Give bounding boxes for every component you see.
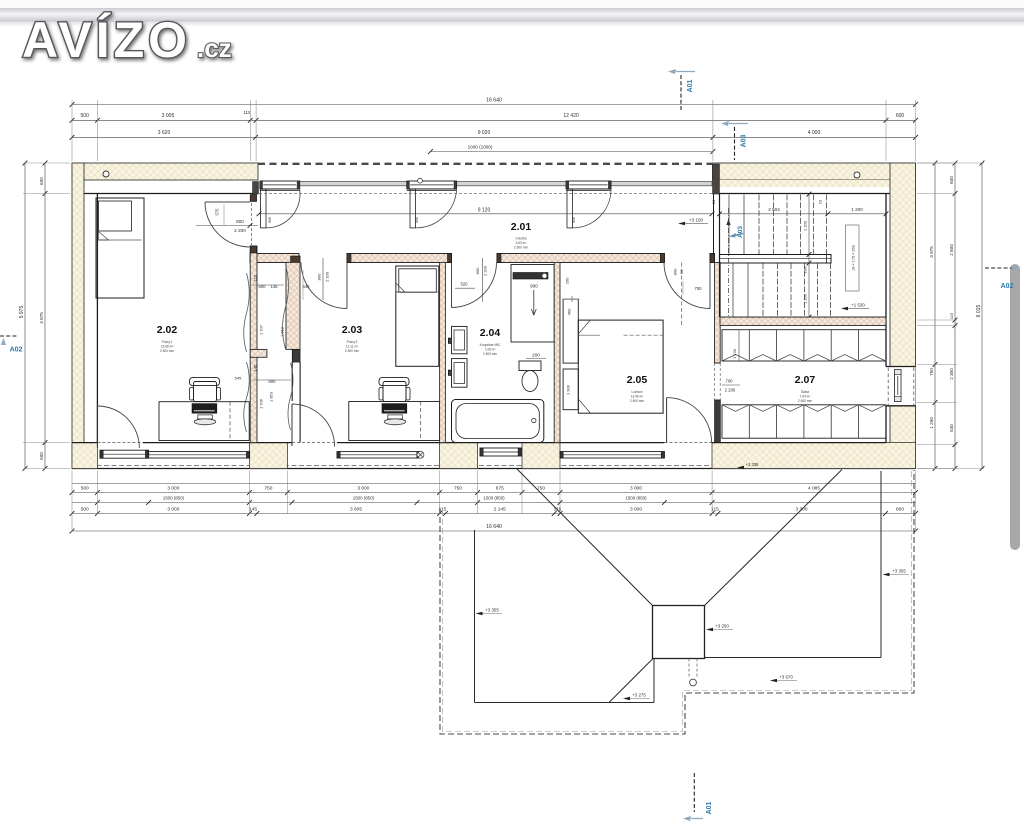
svg-text:2 504: 2 504 xyxy=(768,207,780,212)
svg-text:800: 800 xyxy=(317,273,322,280)
svg-text:1500 (850): 1500 (850) xyxy=(483,496,505,501)
svg-text:A01: A01 xyxy=(706,801,713,814)
svg-text:900: 900 xyxy=(268,217,272,223)
svg-text:100: 100 xyxy=(803,266,808,273)
svg-text:2 600 mm: 2 600 mm xyxy=(514,246,529,250)
svg-text:875: 875 xyxy=(496,486,504,492)
svg-text:2 600 mm: 2 600 mm xyxy=(345,349,360,353)
svg-text:1500 (850): 1500 (850) xyxy=(163,496,185,501)
svg-text:3 000: 3 000 xyxy=(167,486,179,492)
svg-text:7,64 m²: 7,64 m² xyxy=(800,395,811,399)
svg-text:460: 460 xyxy=(567,308,572,315)
svg-text:145: 145 xyxy=(249,507,257,513)
svg-text:750: 750 xyxy=(264,486,272,492)
svg-text:+3 670: +3 670 xyxy=(779,675,793,680)
svg-text:+3 250: +3 250 xyxy=(715,624,729,629)
svg-text:1 200: 1 200 xyxy=(803,220,808,231)
svg-text:+3 275: +3 275 xyxy=(632,693,646,698)
svg-text:1 290: 1 290 xyxy=(929,417,934,429)
svg-text:4 085: 4 085 xyxy=(808,486,820,492)
svg-text:2.05: 2.05 xyxy=(627,374,648,386)
svg-text:2 145: 2 145 xyxy=(494,507,506,513)
svg-text:2 200: 2 200 xyxy=(234,228,246,233)
svg-text:1 200: 1 200 xyxy=(851,207,863,212)
svg-text:1 200: 1 200 xyxy=(803,293,808,304)
svg-text:575: 575 xyxy=(215,208,220,216)
svg-text:700: 700 xyxy=(726,379,734,384)
svg-text:500: 500 xyxy=(81,486,89,492)
svg-text:Chodba: Chodba xyxy=(515,237,526,241)
svg-text:15,68 m²: 15,68 m² xyxy=(161,345,174,349)
svg-text:750: 750 xyxy=(695,286,703,291)
svg-text:1 130: 1 130 xyxy=(732,348,737,359)
svg-text:2 600: 2 600 xyxy=(949,244,954,256)
svg-text:2 350: 2 350 xyxy=(949,368,954,380)
svg-text:Koupelna+WC: Koupelna+WC xyxy=(480,343,501,347)
svg-text:+3 355: +3 355 xyxy=(485,608,499,613)
svg-text:Pokoj 3: Pokoj 3 xyxy=(347,340,358,344)
svg-text:AVÍZO: AVÍZO xyxy=(22,12,191,68)
svg-text:1 612: 1 612 xyxy=(280,326,285,337)
svg-text:520: 520 xyxy=(461,282,469,287)
svg-text:+3 150: +3 150 xyxy=(689,218,704,223)
svg-text:10: 10 xyxy=(818,199,823,204)
svg-text:600: 600 xyxy=(39,177,44,185)
svg-text:7,28 m²: 7,28 m² xyxy=(485,348,496,352)
svg-text:115: 115 xyxy=(253,274,258,281)
svg-text:+3 355: +3 355 xyxy=(892,569,906,574)
svg-text:800: 800 xyxy=(475,267,480,274)
svg-text:3 605: 3 605 xyxy=(350,507,362,513)
svg-text:9 020: 9 020 xyxy=(478,130,491,136)
svg-text:600: 600 xyxy=(896,113,905,119)
svg-text:1500 (850): 1500 (850) xyxy=(625,496,647,501)
svg-text:500: 500 xyxy=(39,452,44,460)
svg-text:800: 800 xyxy=(236,219,244,224)
svg-text:3 975: 3 975 xyxy=(929,246,934,258)
svg-text:A01: A01 xyxy=(687,79,694,92)
svg-text:2.04: 2.04 xyxy=(480,327,501,339)
svg-text:1500 (850): 1500 (850) xyxy=(353,496,375,501)
svg-text:2 200: 2 200 xyxy=(725,388,736,393)
svg-text:500: 500 xyxy=(81,507,89,513)
svg-text:13,46 m²: 13,46 m² xyxy=(631,395,644,399)
svg-text:1 707: 1 707 xyxy=(259,324,264,335)
svg-text:2 600 mm: 2 600 mm xyxy=(483,352,498,356)
svg-text:3 000: 3 000 xyxy=(630,486,642,492)
svg-text:800: 800 xyxy=(673,268,678,275)
svg-text:5 975: 5 975 xyxy=(19,306,25,319)
svg-text:1 853: 1 853 xyxy=(269,391,274,402)
svg-text:900: 900 xyxy=(530,284,538,289)
svg-text:9 120: 9 120 xyxy=(478,207,491,213)
svg-text:900: 900 xyxy=(415,217,419,223)
svg-text:2 200: 2 200 xyxy=(325,271,330,282)
svg-text:900: 900 xyxy=(572,217,576,223)
svg-text:1 706: 1 706 xyxy=(259,398,264,409)
svg-text:600: 600 xyxy=(896,507,904,513)
svg-text:+3 335: +3 335 xyxy=(746,462,760,467)
svg-text:2 600 mm: 2 600 mm xyxy=(630,399,645,403)
svg-text:2 200: 2 200 xyxy=(483,265,488,276)
svg-text:A03: A03 xyxy=(737,226,744,238)
svg-text:+1 530: +1 530 xyxy=(851,303,865,308)
svg-text:2.02: 2.02 xyxy=(157,324,178,336)
svg-text:750: 750 xyxy=(929,368,934,376)
svg-text:2.07: 2.07 xyxy=(795,374,816,386)
svg-text:3 000: 3 000 xyxy=(630,507,642,513)
svg-text:16 640: 16 640 xyxy=(486,98,502,104)
svg-text:115: 115 xyxy=(243,110,251,115)
svg-text:2.03: 2.03 xyxy=(342,324,363,336)
svg-text:Ložnice: Ložnice xyxy=(632,390,643,394)
svg-text:200: 200 xyxy=(532,353,540,358)
svg-text:545: 545 xyxy=(235,376,242,381)
svg-text:115: 115 xyxy=(949,312,954,319)
svg-text:1 900: 1 900 xyxy=(566,384,571,395)
svg-text:750: 750 xyxy=(454,486,462,492)
svg-text:600: 600 xyxy=(949,176,954,184)
svg-text:6 015: 6 015 xyxy=(976,305,982,318)
svg-text:18 × 175 × 263: 18 × 175 × 263 xyxy=(852,245,856,271)
svg-text:A02: A02 xyxy=(10,347,23,354)
svg-text:1000 (1000): 1000 (1000) xyxy=(468,145,493,150)
svg-text:3 620: 3 620 xyxy=(158,130,171,136)
svg-text:2 600 mm: 2 600 mm xyxy=(160,349,175,353)
svg-text:3 000: 3 000 xyxy=(357,486,369,492)
svg-text:500: 500 xyxy=(81,113,90,119)
svg-text:145: 145 xyxy=(253,364,258,371)
svg-text:3 000: 3 000 xyxy=(167,507,179,513)
svg-text:.cz: .cz xyxy=(197,33,232,63)
svg-text:9,63 m²: 9,63 m² xyxy=(516,241,527,245)
svg-text:200: 200 xyxy=(565,277,570,284)
svg-text:2 600 mm: 2 600 mm xyxy=(798,399,813,403)
svg-text:18: 18 xyxy=(711,199,716,204)
svg-text:Šatna: Šatna xyxy=(801,389,810,394)
svg-text:4 000: 4 000 xyxy=(808,130,821,136)
svg-text:4 875: 4 875 xyxy=(39,312,44,324)
svg-text:16 640: 16 640 xyxy=(486,524,502,530)
svg-text:12,11 m²: 12,11 m² xyxy=(346,345,358,349)
svg-text:3 005: 3 005 xyxy=(162,113,175,119)
svg-text:12 420: 12 420 xyxy=(563,113,579,119)
svg-text:A03: A03 xyxy=(741,134,748,147)
svg-text:Pokoj 2: Pokoj 2 xyxy=(162,340,173,344)
svg-text:540: 540 xyxy=(949,424,954,432)
svg-text:2.01: 2.01 xyxy=(511,221,532,233)
svg-text:A02: A02 xyxy=(1001,283,1014,290)
